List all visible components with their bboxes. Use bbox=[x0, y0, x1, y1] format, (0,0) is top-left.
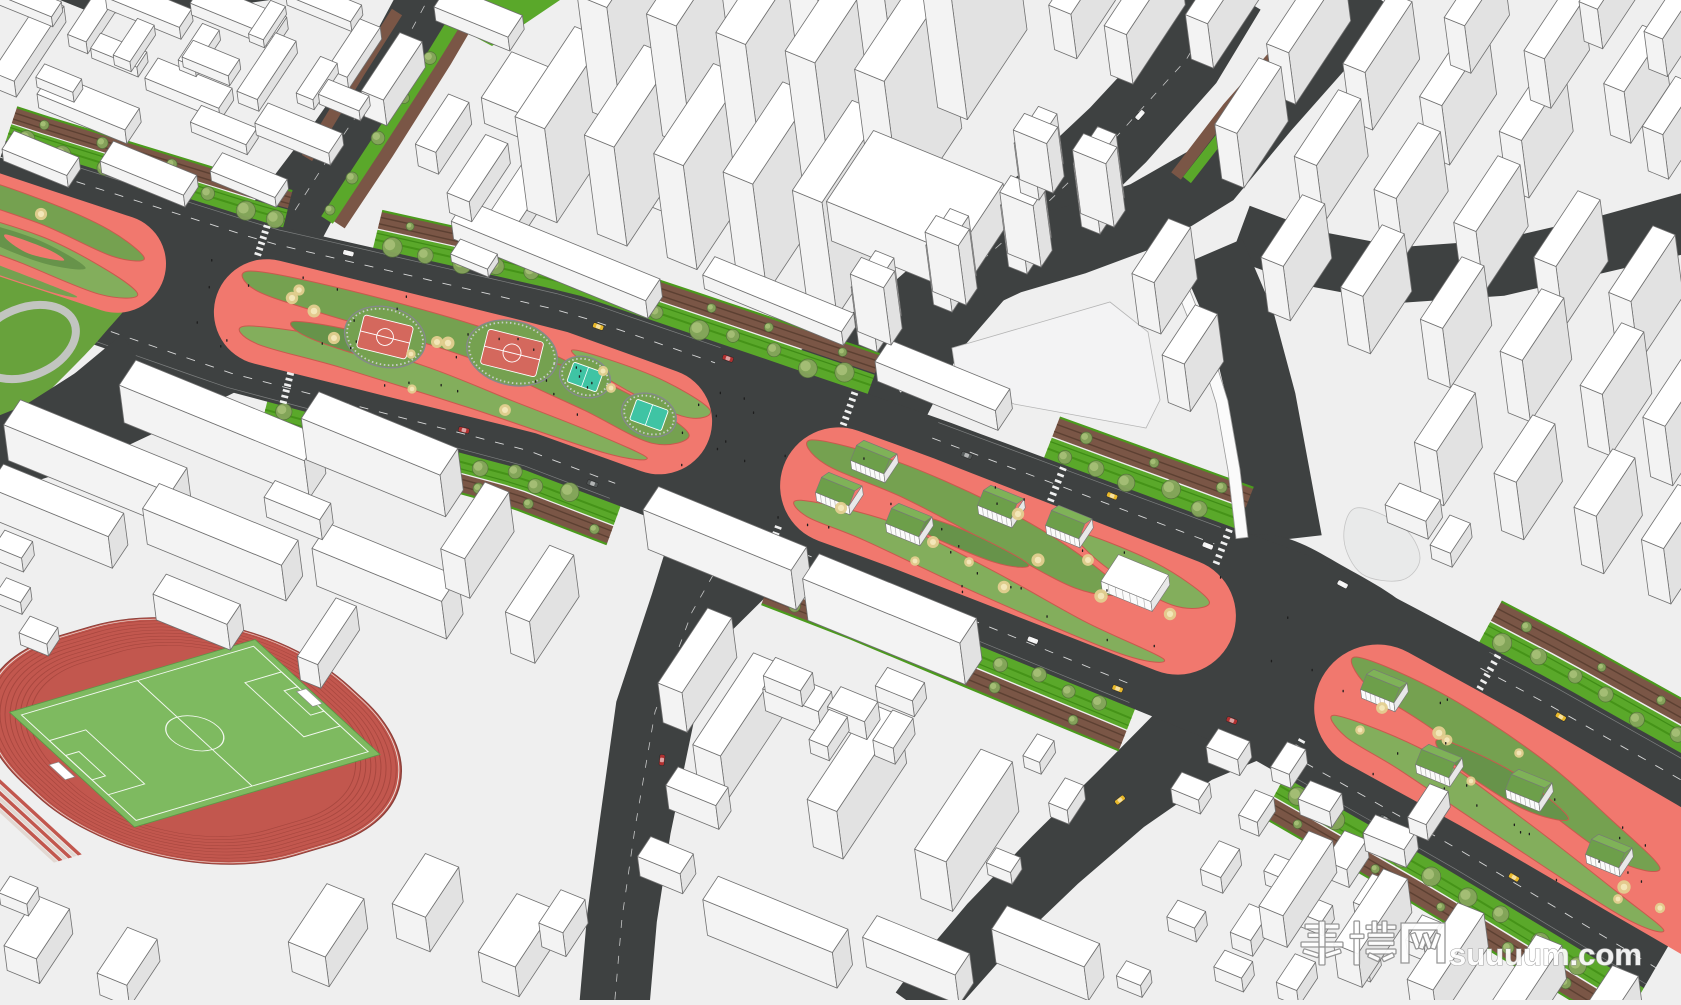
svg-text:suuuum.com: suuuum.com bbox=[1449, 937, 1642, 972]
